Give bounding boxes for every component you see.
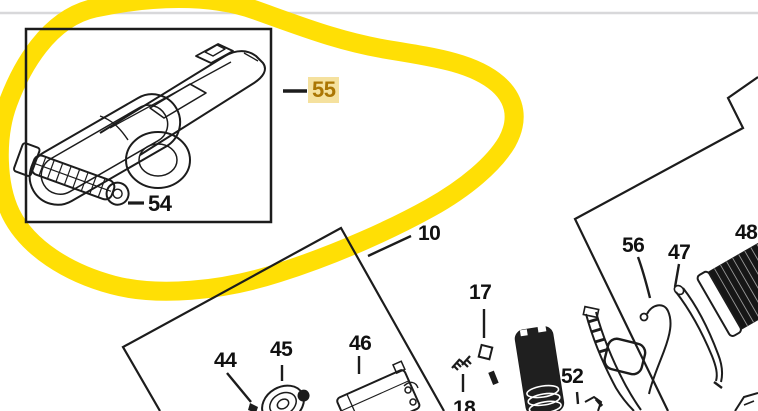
- corner-bracket-drawing: [735, 393, 758, 411]
- leader-52: [577, 392, 578, 404]
- callout-52: 52: [561, 366, 583, 387]
- callout-44: 44: [214, 350, 236, 371]
- callout-56: 56: [622, 235, 644, 256]
- leader-47: [675, 264, 679, 287]
- yellow-marker-circle: [0, 0, 514, 291]
- clip-drawing: [479, 345, 493, 359]
- screws-drawing: [452, 356, 471, 370]
- callout-17: 17: [469, 282, 491, 303]
- base-panel-outline: [123, 228, 444, 411]
- parts-diagram-page: 55 54 10 17 18 44 45 46 47 48 52 56: [0, 0, 758, 411]
- fan-disc-drawing: [255, 376, 314, 411]
- callout-10: 10: [418, 223, 440, 244]
- motor-drawing: [333, 361, 422, 411]
- power-head-drawing: [19, 44, 265, 215]
- leader-56: [638, 257, 650, 298]
- callout-48: 48: [735, 222, 757, 243]
- part-44-edge-drawing: [248, 403, 258, 411]
- leader-44: [227, 373, 251, 402]
- callout-18: 18: [453, 398, 475, 411]
- callout-47: 47: [668, 242, 690, 263]
- rail-handle-drawing: [583, 307, 647, 411]
- bracket-52-drawing: [585, 397, 602, 411]
- callout-46: 46: [349, 333, 371, 354]
- diagram-canvas: [0, 0, 758, 411]
- callout-45: 45: [270, 339, 292, 360]
- callout-54: 54: [148, 193, 171, 215]
- hose-tube-drawing: [514, 324, 565, 411]
- callout-55: 55: [308, 77, 339, 103]
- pin-drawing: [489, 371, 498, 384]
